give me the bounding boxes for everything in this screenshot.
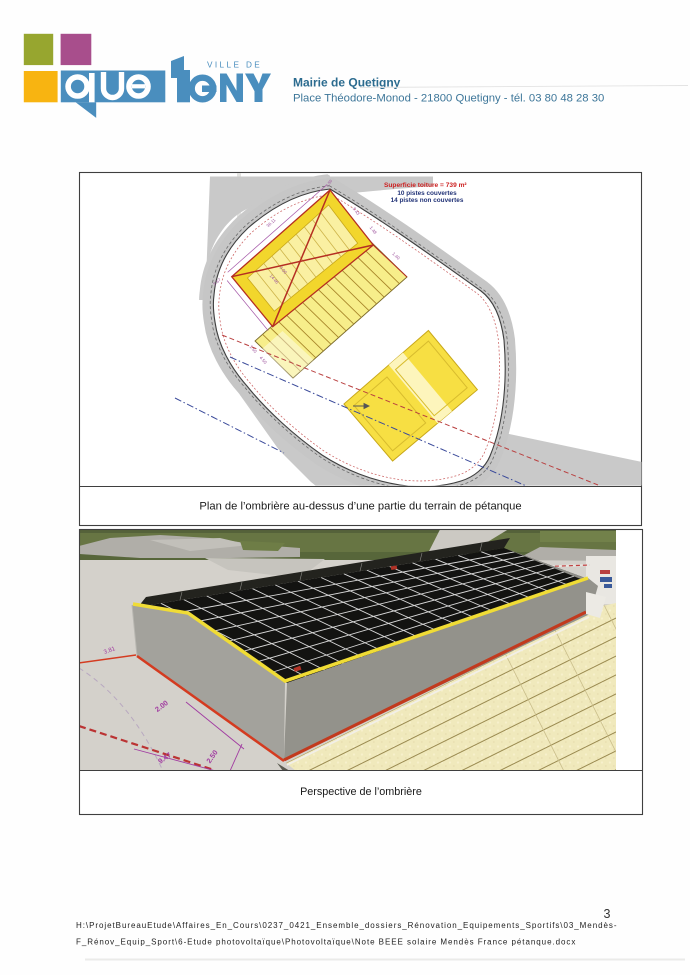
svg-text:F_Rénov_Equip_Sport\6-Etude ph: F_Rénov_Equip_Sport\6-Etude photovoltaïq…: [76, 938, 576, 947]
svg-text:Superficie toiture = 739 m²: Superficie toiture = 739 m²: [384, 182, 467, 189]
svg-text:Perspective de l’ombrière: Perspective de l’ombrière: [300, 786, 422, 798]
svg-text:Plan de l’ombrière au-dessus d: Plan de l’ombrière au-dessus d’une parti…: [199, 501, 521, 513]
svg-text:3: 3: [604, 907, 611, 921]
svg-text:14 pistes non couvertes: 14 pistes non couvertes: [391, 197, 464, 204]
svg-text:H:\ProjetBureauEtude\Affaires_: H:\ProjetBureauEtude\Affaires_En_Cours\0…: [76, 921, 617, 930]
svg-text:VILLE DE: VILLE DE: [207, 61, 262, 70]
svg-text:Place Théodore-Monod - 21800 Q: Place Théodore-Monod - 21800 Quetigny - …: [293, 93, 604, 105]
svg-text:10 pistes couvertes: 10 pistes couvertes: [397, 190, 457, 197]
